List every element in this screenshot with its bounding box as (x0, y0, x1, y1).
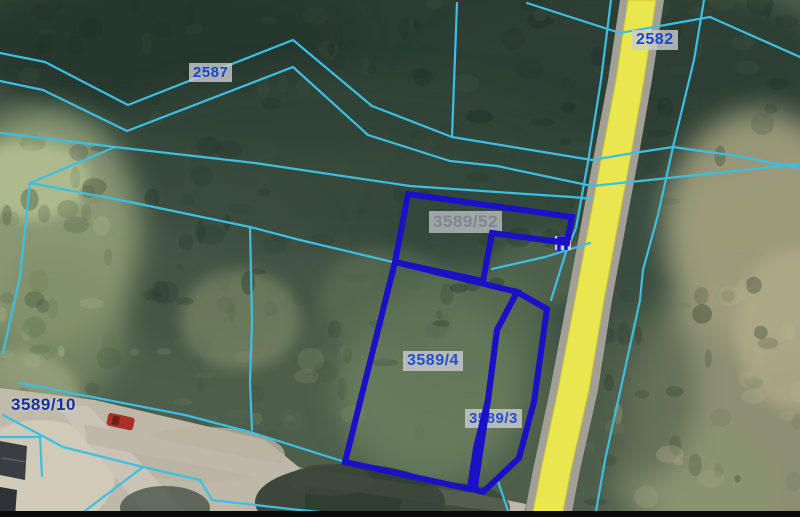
cadastral-map-viewport[interactable]: 258725823589/523589/43589/33589/10 (0, 0, 800, 517)
aerial-base-layer (0, 0, 800, 517)
bottom-black-bar (0, 511, 800, 517)
